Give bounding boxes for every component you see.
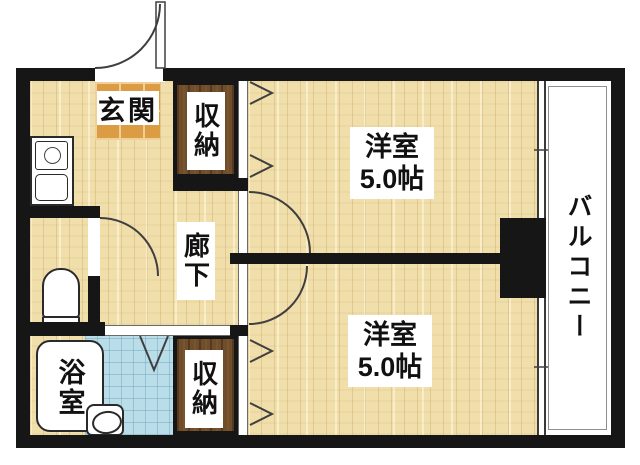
room-top-label: 洋室 5.0帖 [350, 127, 434, 199]
entrance-door-arc [95, 4, 160, 68]
kitchen-sink [35, 174, 68, 201]
entrance-door-leaf [156, 2, 165, 68]
kitchen-burner [35, 141, 68, 170]
wall-stub-bath-closet [230, 325, 248, 336]
wall-kitchen-toilet [30, 206, 100, 218]
washbasin-bowl-icon [91, 409, 124, 436]
toilet-bowl [42, 268, 80, 318]
washbasin [86, 404, 124, 436]
kitchen-unit [30, 136, 74, 206]
room-bottom-label: 洋室 5.0帖 [348, 315, 432, 387]
room-top-name: 洋室 [365, 131, 419, 163]
burner-circle-icon [44, 147, 61, 164]
pillar-right [500, 218, 546, 298]
balcony-label: バルコニー [560, 180, 596, 355]
wall-below-closet-top [173, 178, 248, 191]
bathroom-label: 浴室 [52, 352, 88, 424]
toilet-door-opening [88, 218, 100, 276]
room-bottom-size: 5.0帖 [358, 351, 423, 383]
wall-right [611, 68, 625, 448]
closet-top-label: 収納 [187, 92, 225, 170]
wall-room-divider [230, 253, 500, 264]
bathroom-door-track [105, 325, 230, 336]
corridor-label: 廊下 [177, 222, 215, 300]
entrance-label: 玄関 [97, 91, 159, 125]
room-bottom-name: 洋室 [363, 319, 417, 351]
wall-bath-top [30, 322, 105, 336]
room-top-size: 5.0帖 [360, 163, 425, 195]
floor-plan: 玄関 収納 収納 廊下 洋室 5.0帖 洋室 5.0帖 浴室 バルコニー [0, 0, 640, 465]
entrance-threshold [95, 68, 163, 81]
closet-bottom-label: 収納 [185, 350, 223, 428]
wall-bottom [16, 435, 625, 448]
wall-left [16, 68, 30, 448]
